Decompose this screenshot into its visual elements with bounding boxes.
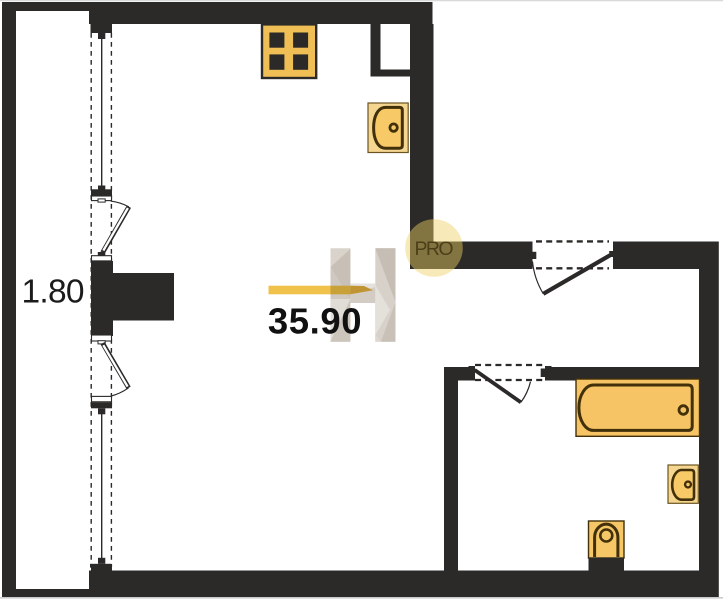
svg-text:PRO: PRO [415, 238, 454, 260]
svg-text:35.90: 35.90 [268, 301, 362, 342]
svg-text:1.80: 1.80 [22, 274, 85, 311]
